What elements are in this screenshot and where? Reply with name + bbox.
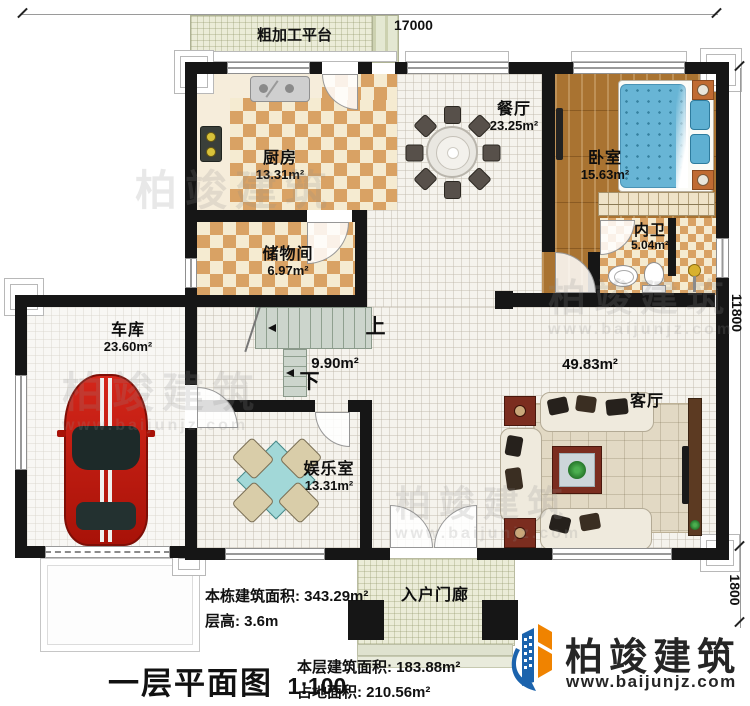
stairs-arrow [268,324,276,332]
wall-segment [672,548,729,560]
watermark: 柏竣建筑 [135,170,335,212]
watermark: 柏竣建筑www.baijunjz.com [62,372,262,435]
sofa-pillow [504,435,523,457]
stairs-up-label: 上 [358,316,394,339]
bed-pillow [690,134,710,164]
nightstand [692,170,714,190]
porch-pillar [348,600,384,640]
room-label-bedroom: 卧室15.63m² [560,150,650,183]
wardrobe [598,192,715,216]
window [716,238,729,278]
dimension-width: 17000 [394,17,433,33]
dining-chair [406,145,424,162]
brand-url: www.baijunjz.com [566,672,737,692]
wall-segment [310,62,322,74]
brand-logo-icon [502,618,562,694]
side-table [504,396,536,426]
room-label-bathroom: 内卫5.04m² [610,222,690,253]
dimension-line-top [22,14,718,15]
dimension-height: 11800 [729,278,745,348]
sofa-pillow [575,395,597,414]
lamp-icon [697,174,709,186]
wall-segment [15,295,27,375]
porch-step [357,644,513,656]
plan-title-text: 一层平面图 [108,666,273,701]
room-label-garage: 车库23.60m² [83,322,173,355]
dimension-tick [711,8,722,19]
wall-segment [185,210,197,258]
room-label-living: 客厅 [612,393,682,411]
window [407,62,509,74]
room-area-living: 49.83m² [545,356,635,373]
column [495,291,513,309]
burner-icon [206,147,216,157]
window-sill [571,51,687,62]
plant-icon [690,520,700,530]
stairs-area-label: 9.90m² [300,355,370,372]
burner-icon [206,132,216,142]
side-table-decor [514,405,526,417]
faucet-icon [285,84,294,93]
note-floor-height: 层高: 3.6m [205,610,278,631]
car-rear-window [76,502,136,530]
note-footprint: 占地面积: 210.56m² [297,681,430,702]
bed-blanket [676,84,688,188]
wall-segment [325,548,390,560]
room-label-dining: 餐厅23.25m² [469,101,559,134]
lamp-icon [697,84,709,96]
wall-segment [15,546,45,558]
dining-chair [444,106,461,124]
dining-chair [483,145,501,162]
watermark: 柏竣建筑www.baijunjz.com [395,486,581,543]
window-sill [190,51,397,62]
wall-segment [185,428,197,548]
note-building-total: 本栋建筑面积: 343.29m² [205,585,368,606]
window [573,62,685,74]
window [15,375,27,470]
stove [200,126,222,162]
note-floor-area: 本层建筑面积: 183.88m² [297,656,460,677]
stairs-down-label: 下 [292,371,328,394]
wall-segment [15,470,27,558]
watermark: 柏竣建筑www.baijunjz.com [548,280,734,339]
wardrobe-rail [599,204,714,205]
room-platform: 粗加工平台 [190,15,399,53]
wall-segment [395,62,407,74]
window [185,258,197,288]
window [225,548,325,560]
wall-segment [509,62,573,74]
room-label-porch: 入户门廊 [375,587,495,605]
window [227,62,310,74]
window-sill [405,51,509,62]
room-label-storage: 储物间6.97m² [243,246,333,279]
kitchen-sink [250,76,310,102]
window [552,548,672,560]
bed-pillow [690,100,710,130]
faucet-icon [259,84,268,93]
plant-icon [568,461,586,479]
nightstand [692,80,714,100]
wall-segment [15,295,367,307]
hall-floor [367,210,397,307]
garage-door-dashes [45,551,170,553]
room-label: 粗加工平台 [257,27,332,44]
dining-chair [444,181,461,199]
room-label-entertainment: 娱乐室13.31m² [283,461,375,494]
wall-segment [358,62,372,74]
tv-cabinet [688,398,702,536]
living-tv [682,446,689,504]
wall-segment [477,548,552,560]
floor-plan: 17000 11800 1800 粗加工平台 上 9.90m² 下 [0,0,750,706]
dining-table-center [447,147,459,159]
dimension-porch: 1800 [727,555,743,625]
wall-segment [716,62,729,238]
dimension-tick [17,8,28,19]
sofa-pillow [579,512,601,531]
building-logo-icon [502,618,562,694]
wall-segment [355,210,367,307]
